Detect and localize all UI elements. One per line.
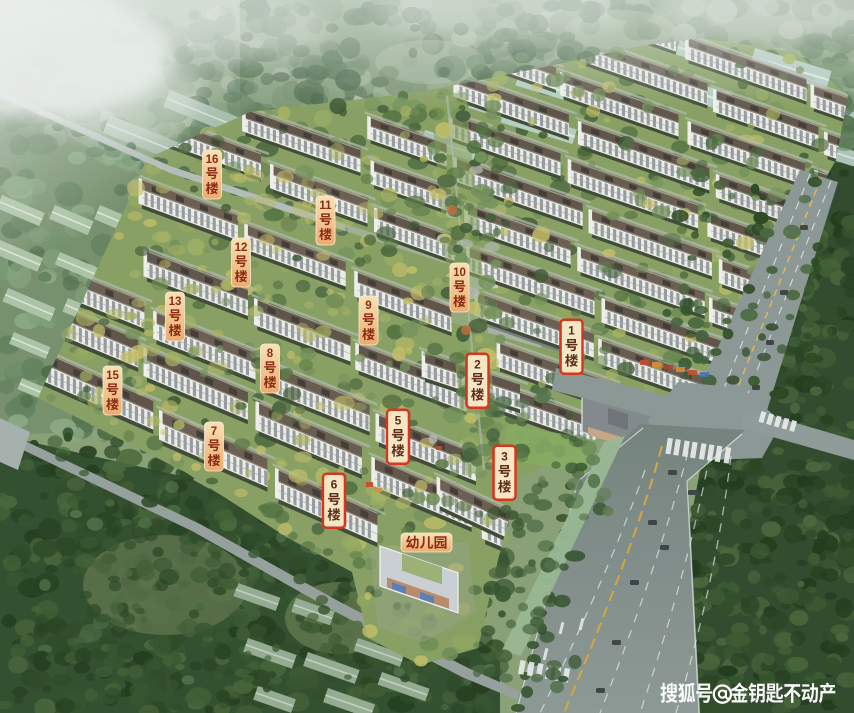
svg-text:1: 1 bbox=[568, 324, 575, 338]
svg-text:7: 7 bbox=[211, 426, 217, 438]
svg-text:6: 6 bbox=[331, 478, 338, 492]
svg-text:12: 12 bbox=[235, 242, 248, 254]
svg-text:10: 10 bbox=[453, 267, 466, 279]
svg-text:9: 9 bbox=[365, 300, 371, 312]
svg-text:11: 11 bbox=[319, 200, 332, 212]
svg-text:5: 5 bbox=[395, 414, 402, 428]
svg-text:13: 13 bbox=[169, 296, 182, 308]
svg-text:2: 2 bbox=[474, 358, 481, 372]
svg-text:3: 3 bbox=[501, 450, 508, 464]
svg-text:15: 15 bbox=[106, 370, 119, 382]
svg-text:8: 8 bbox=[267, 348, 274, 360]
svg-text:16: 16 bbox=[206, 154, 219, 166]
